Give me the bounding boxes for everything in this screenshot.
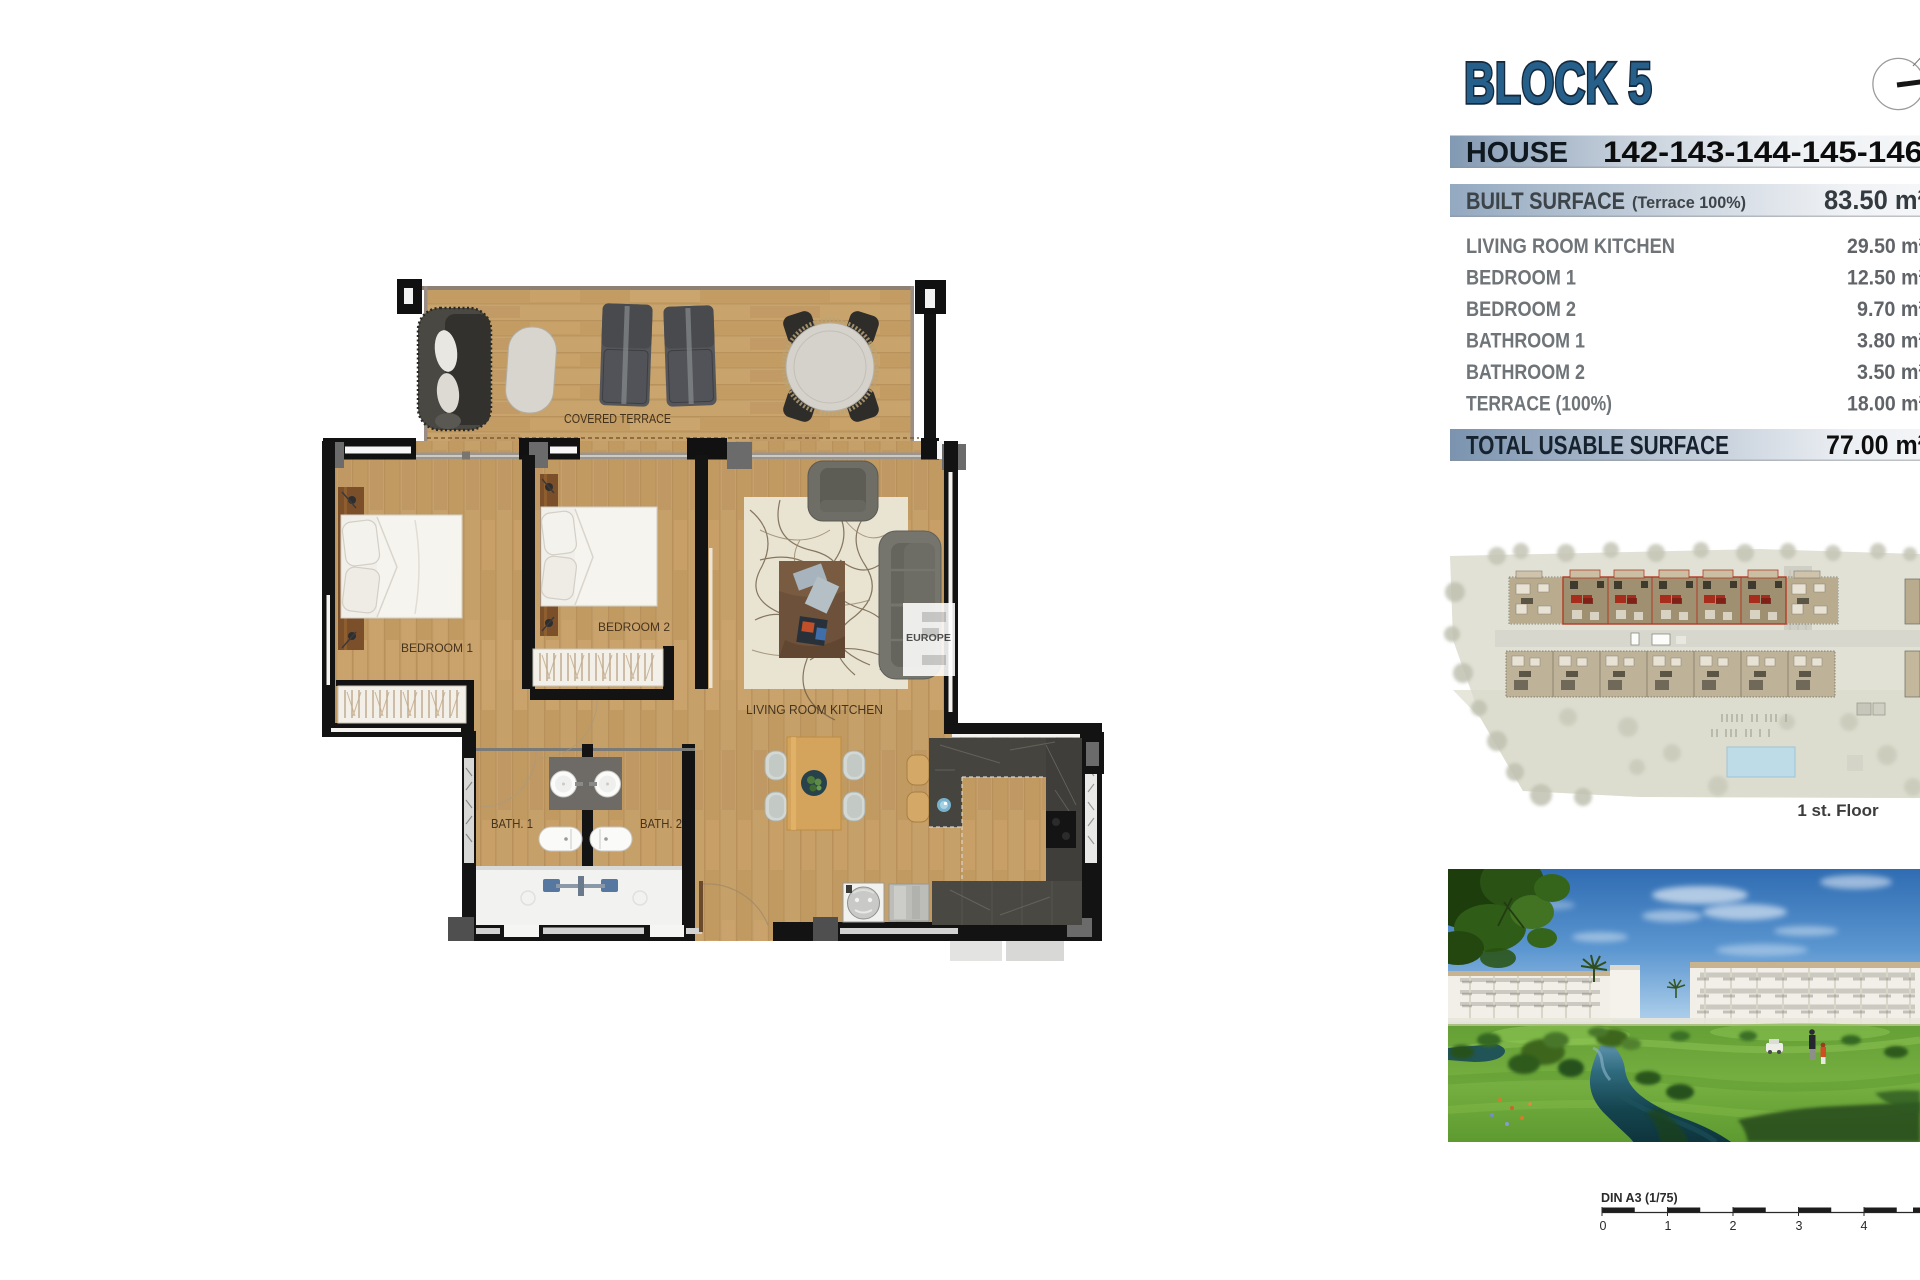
svg-text:TOTAL USABLE SURFACE: TOTAL USABLE SURFACE bbox=[1466, 430, 1729, 460]
svg-text:1: 1 bbox=[1665, 1219, 1672, 1233]
svg-text:COVERED TERRACE: COVERED TERRACE bbox=[564, 411, 671, 426]
svg-text:LIVING ROOM KITCHEN: LIVING ROOM KITCHEN bbox=[746, 703, 883, 717]
svg-text:BATHROOM 2: BATHROOM 2 bbox=[1466, 360, 1585, 384]
svg-text:BEDROOM 2: BEDROOM 2 bbox=[598, 620, 670, 634]
svg-text:EUROPE: EUROPE bbox=[906, 633, 951, 644]
svg-text:4: 4 bbox=[1861, 1219, 1868, 1233]
svg-text:BATHROOM 1: BATHROOM 1 bbox=[1466, 329, 1585, 353]
svg-text:3.50 m²: 3.50 m² bbox=[1857, 360, 1920, 384]
svg-text:3: 3 bbox=[1796, 1219, 1803, 1233]
svg-text:12.50 m²: 12.50 m² bbox=[1847, 266, 1920, 290]
svg-text:0: 0 bbox=[1600, 1219, 1607, 1233]
svg-text:29.50 m²: 29.50 m² bbox=[1847, 234, 1920, 258]
svg-text:(Terrace 100%): (Terrace 100%) bbox=[1632, 193, 1746, 212]
svg-text:BEDROOM 1: BEDROOM 1 bbox=[1466, 266, 1576, 290]
svg-text:9.70 m²: 9.70 m² bbox=[1857, 297, 1920, 321]
svg-text:83.50 m²: 83.50 m² bbox=[1824, 185, 1920, 215]
svg-text:LIVING ROOM KITCHEN: LIVING ROOM KITCHEN bbox=[1466, 234, 1675, 258]
svg-text:BATH. 1: BATH. 1 bbox=[491, 817, 533, 831]
svg-text:DIN A3 (1/75): DIN A3 (1/75) bbox=[1601, 1191, 1678, 1205]
svg-text:BLOCK 5: BLOCK 5 bbox=[1464, 51, 1652, 116]
svg-text:BEDROOM 2: BEDROOM 2 bbox=[1466, 297, 1576, 321]
svg-text:1 st. Floor: 1 st. Floor bbox=[1797, 801, 1879, 820]
svg-text:77.00 m²: 77.00 m² bbox=[1826, 430, 1920, 460]
svg-text:142-143-144-145-146: 142-143-144-145-146 bbox=[1603, 136, 1920, 169]
svg-text:HOUSE: HOUSE bbox=[1466, 137, 1568, 169]
svg-text:3.80 m²: 3.80 m² bbox=[1857, 329, 1920, 353]
svg-text:2: 2 bbox=[1730, 1219, 1737, 1233]
svg-text:18.00 m²: 18.00 m² bbox=[1847, 392, 1920, 416]
svg-text:BUILT SURFACE: BUILT SURFACE bbox=[1466, 188, 1625, 215]
svg-text:BEDROOM 1: BEDROOM 1 bbox=[401, 641, 473, 655]
svg-text:BATH. 2: BATH. 2 bbox=[640, 817, 682, 831]
svg-text:TERRACE (100%): TERRACE (100%) bbox=[1466, 392, 1612, 416]
